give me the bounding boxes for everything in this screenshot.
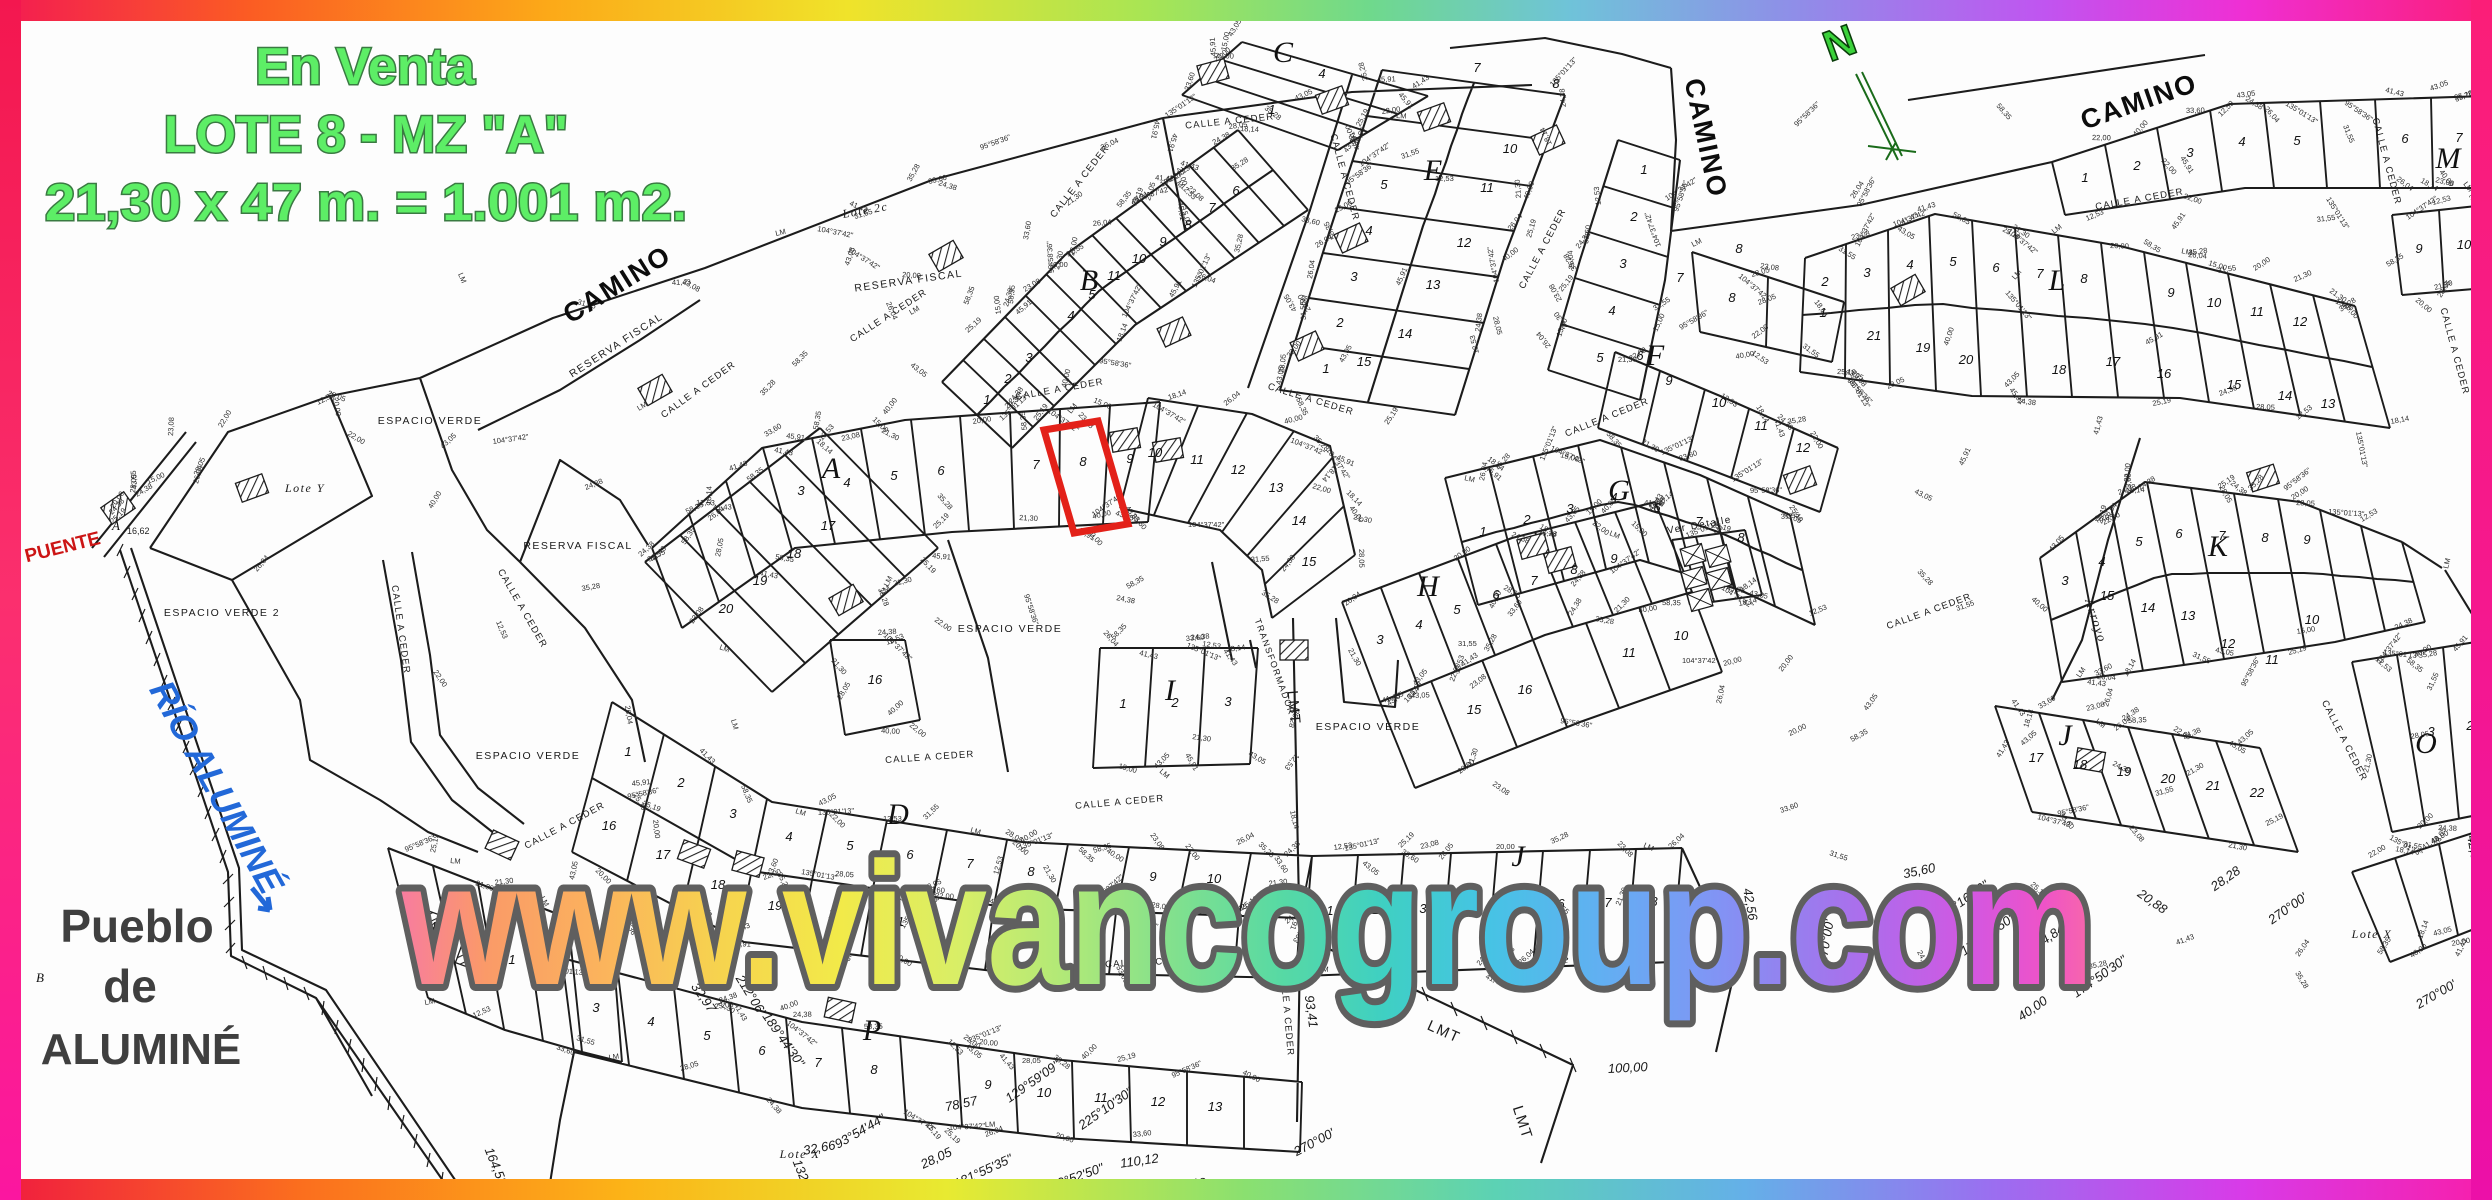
svg-text:17: 17	[821, 518, 836, 533]
svg-text:RESERVA FISCAL: RESERVA FISCAL	[523, 540, 632, 552]
svg-text:5: 5	[703, 1028, 711, 1043]
svg-text:5: 5	[890, 468, 898, 483]
svg-text:2: 2	[1335, 315, 1344, 330]
svg-text:11: 11	[1622, 645, 1636, 660]
svg-text:5: 5	[1380, 177, 1388, 192]
svg-text:3: 3	[1224, 694, 1232, 709]
svg-text:7: 7	[1676, 270, 1684, 285]
svg-text:1: 1	[2081, 170, 2088, 185]
svg-text:21,30 x 47 m. = 1.001 m2.: 21,30 x 47 m. = 1.001 m2.	[45, 174, 687, 232]
svg-text:1: 1	[1322, 361, 1329, 376]
svg-text:19: 19	[2117, 764, 2131, 779]
svg-text:8: 8	[870, 1062, 878, 1077]
svg-text:33,60: 33,60	[2186, 106, 2205, 115]
svg-text:20: 20	[1958, 352, 1974, 367]
svg-text:18: 18	[2073, 757, 2088, 772]
svg-text:3: 3	[1566, 501, 1574, 516]
svg-text:45,91: 45,91	[1377, 74, 1396, 84]
svg-text:O: O	[2415, 727, 2437, 760]
svg-text:12: 12	[1151, 1094, 1166, 1109]
svg-text:10: 10	[1132, 251, 1147, 266]
svg-text:18: 18	[787, 546, 802, 561]
svg-text:28,05: 28,05	[1357, 549, 1366, 568]
svg-text:LOTE 8 - MZ "A": LOTE 8 - MZ "A"	[164, 106, 569, 164]
svg-text:1: 1	[1640, 162, 1647, 177]
svg-text:28,05: 28,05	[2296, 498, 2315, 508]
svg-text:12: 12	[1796, 440, 1811, 455]
svg-text:22,00: 22,00	[2092, 133, 2111, 142]
svg-text:10: 10	[1674, 628, 1689, 643]
svg-text:6: 6	[1492, 587, 1500, 602]
svg-text:10: 10	[1712, 395, 1727, 410]
svg-text:7: 7	[1032, 457, 1040, 472]
svg-text:1: 1	[624, 744, 631, 759]
svg-text:1: 1	[1119, 696, 1126, 711]
svg-text:5: 5	[1596, 350, 1604, 365]
svg-text:31,55: 31,55	[1251, 554, 1270, 564]
svg-text:3: 3	[1619, 256, 1627, 271]
svg-text:5: 5	[1453, 602, 1461, 617]
svg-text:15: 15	[2227, 377, 2242, 392]
svg-text:10: 10	[1503, 141, 1518, 156]
svg-text:4: 4	[1608, 303, 1615, 318]
svg-text:16: 16	[1518, 682, 1533, 697]
svg-text:31,55: 31,55	[1458, 639, 1477, 648]
svg-text:2: 2	[676, 775, 685, 790]
svg-text:de: de	[103, 960, 157, 1012]
svg-text:19: 19	[753, 573, 767, 588]
svg-text:2: 2	[1522, 512, 1531, 527]
svg-text:www.vivancogroup.com: www.vivancogroup.com	[401, 827, 2094, 1022]
svg-text:6: 6	[1636, 348, 1644, 363]
svg-text:4: 4	[2238, 134, 2245, 149]
svg-text:5: 5	[2135, 534, 2143, 549]
svg-text:6: 6	[2175, 526, 2183, 541]
svg-text:3: 3	[2061, 573, 2069, 588]
svg-text:15: 15	[1357, 354, 1372, 369]
svg-text:1: 1	[983, 392, 990, 407]
svg-text:3: 3	[1350, 269, 1358, 284]
svg-text:ESPACIO VERDE: ESPACIO VERDE	[378, 415, 483, 427]
svg-text:11: 11	[1107, 268, 1121, 283]
svg-text:2: 2	[1003, 371, 1012, 386]
svg-text:9: 9	[2415, 241, 2422, 256]
svg-text:104°37'42": 104°37'42"	[1188, 520, 1225, 529]
svg-text:26,04: 26,04	[2188, 250, 2207, 261]
svg-text:B: B	[36, 970, 44, 985]
svg-text:12: 12	[1231, 462, 1246, 477]
svg-text:11: 11	[2250, 304, 2264, 319]
svg-text:LM: LM	[608, 1052, 620, 1062]
svg-text:8: 8	[2080, 271, 2088, 286]
svg-text:20: 20	[718, 601, 734, 616]
svg-text:25,19: 25,19	[1837, 367, 1856, 377]
svg-text:4: 4	[1067, 308, 1074, 323]
svg-text:7: 7	[1473, 60, 1481, 75]
svg-text:ESPACIO VERDE: ESPACIO VERDE	[958, 623, 1063, 635]
svg-text:1: 1	[1479, 524, 1486, 539]
svg-text:10: 10	[2305, 612, 2320, 627]
svg-text:15: 15	[1467, 702, 1482, 717]
svg-text:8: 8	[1184, 217, 1192, 232]
svg-text:E: E	[1423, 154, 1442, 187]
svg-text:21: 21	[2205, 778, 2220, 793]
svg-text:28,05: 28,05	[1022, 1056, 1041, 1065]
svg-text:23,08: 23,08	[166, 417, 176, 436]
svg-text:4: 4	[1906, 257, 1913, 272]
svg-text:22: 22	[2249, 785, 2265, 800]
svg-text:14: 14	[2141, 600, 2155, 615]
svg-text:7: 7	[814, 1055, 822, 1070]
svg-text:3: 3	[2186, 145, 2194, 160]
svg-text:K: K	[2207, 530, 2230, 563]
svg-text:20,00: 20,00	[2110, 241, 2129, 251]
svg-text:18: 18	[2052, 362, 2067, 377]
svg-text:Pueblo: Pueblo	[60, 900, 213, 952]
svg-text:6: 6	[2401, 131, 2409, 146]
svg-text:13: 13	[1208, 1099, 1223, 1114]
svg-text:12: 12	[2293, 314, 2308, 329]
svg-text:26,04: 26,04	[1092, 217, 1111, 228]
svg-text:16: 16	[868, 672, 883, 687]
svg-text:3: 3	[1025, 350, 1033, 365]
svg-text:18,14: 18,14	[2126, 485, 2145, 495]
svg-text:40,00: 40,00	[881, 726, 900, 736]
svg-text:7: 7	[2036, 266, 2044, 281]
svg-text:21: 21	[1866, 328, 1881, 343]
svg-text:15: 15	[2100, 588, 2115, 603]
svg-text:22,00: 22,00	[2122, 463, 2132, 482]
svg-text:ALUMINÉ: ALUMINÉ	[41, 1024, 241, 1074]
svg-text:6: 6	[937, 463, 945, 478]
svg-text:11: 11	[2265, 652, 2279, 667]
svg-text:13: 13	[2181, 608, 2196, 623]
svg-text:58,35: 58,35	[1662, 598, 1681, 607]
svg-text:24,38: 24,38	[1557, 88, 1568, 107]
svg-text:4: 4	[843, 475, 850, 490]
svg-text:2: 2	[2132, 158, 2141, 173]
svg-text:24,38: 24,38	[878, 627, 897, 637]
svg-text:5: 5	[1949, 254, 1957, 269]
svg-text:11: 11	[1480, 180, 1494, 195]
svg-text:14: 14	[1398, 326, 1412, 341]
svg-text:C: C	[1273, 36, 1294, 69]
svg-text:3: 3	[797, 483, 805, 498]
svg-text:F: F	[1645, 339, 1665, 372]
svg-text:14: 14	[2278, 388, 2292, 403]
svg-text:Lote X: Lote X	[2351, 927, 2393, 941]
svg-text:20: 20	[2160, 771, 2176, 786]
svg-text:9: 9	[984, 1077, 991, 1092]
svg-text:5: 5	[2293, 133, 2301, 148]
svg-text:15: 15	[1302, 554, 1317, 569]
svg-text:9: 9	[1159, 234, 1166, 249]
svg-text:45,91: 45,91	[932, 551, 951, 562]
svg-text:43,05: 43,05	[129, 470, 139, 489]
svg-text:21,30: 21,30	[1618, 355, 1637, 364]
svg-text:8: 8	[2261, 530, 2269, 545]
svg-text:J: J	[2058, 719, 2073, 752]
svg-text:A: A	[111, 518, 120, 533]
svg-text:12: 12	[1457, 235, 1472, 250]
svg-text:8: 8	[1552, 76, 1560, 91]
svg-text:L: L	[2048, 264, 2066, 297]
svg-text:104°37'42": 104°37'42"	[1682, 656, 1719, 665]
svg-text:104°37'42": 104°37'42"	[949, 1121, 986, 1132]
svg-text:100,00: 100,00	[1608, 1059, 1649, 1076]
svg-text:28,05: 28,05	[2256, 402, 2275, 412]
svg-text:9: 9	[1126, 451, 1133, 466]
svg-text:6: 6	[1232, 183, 1240, 198]
svg-text:17: 17	[2106, 354, 2121, 369]
svg-text:ESPACIO VERDE 2: ESPACIO VERDE 2	[164, 607, 280, 619]
svg-text:4: 4	[2098, 554, 2105, 569]
svg-text:21,30: 21,30	[1019, 513, 1038, 523]
svg-text:ESPACIO VERDE: ESPACIO VERDE	[476, 750, 581, 762]
svg-text:2: 2	[1629, 209, 1638, 224]
svg-text:4: 4	[1365, 223, 1372, 238]
svg-text:11: 11	[1754, 418, 1768, 433]
svg-text:2: 2	[1820, 274, 1829, 289]
svg-text:17: 17	[2029, 750, 2044, 765]
svg-text:13: 13	[1269, 480, 1284, 495]
svg-text:B: B	[1080, 264, 1098, 297]
svg-text:95°58'36": 95°58'36"	[1750, 485, 1783, 495]
svg-text:Lote Y: Lote Y	[284, 481, 325, 495]
svg-text:9: 9	[2167, 285, 2174, 300]
svg-text:10: 10	[2207, 295, 2222, 310]
svg-text:7: 7	[1530, 573, 1538, 588]
svg-text:9: 9	[2303, 532, 2310, 547]
svg-text:13: 13	[1426, 277, 1441, 292]
svg-text:En Venta: En Venta	[255, 38, 476, 96]
svg-text:M: M	[2435, 142, 2463, 175]
svg-text:10: 10	[2457, 237, 2472, 252]
svg-text:3: 3	[1863, 265, 1871, 280]
svg-text:8: 8	[1570, 562, 1578, 577]
svg-text:9: 9	[1610, 551, 1617, 566]
svg-text:A: A	[820, 452, 841, 485]
svg-text:4: 4	[1318, 66, 1325, 81]
svg-text:9: 9	[1665, 373, 1672, 388]
svg-text:6: 6	[758, 1043, 766, 1058]
svg-text:4: 4	[1415, 617, 1422, 632]
svg-text:10: 10	[1148, 445, 1163, 460]
svg-text:3: 3	[1376, 632, 1384, 647]
svg-text:41,43: 41,43	[672, 277, 691, 287]
svg-text:6: 6	[1653, 500, 1661, 515]
svg-text:11: 11	[1190, 452, 1204, 467]
svg-text:G: G	[1608, 474, 1630, 507]
svg-text:14: 14	[1292, 513, 1306, 528]
svg-text:6: 6	[1992, 260, 2000, 275]
svg-text:H: H	[1416, 570, 1441, 603]
svg-text:ESPACIO VERDE: ESPACIO VERDE	[1316, 721, 1421, 733]
svg-text:19: 19	[1916, 340, 1930, 355]
svg-text:8: 8	[1079, 454, 1087, 469]
svg-text:10: 10	[1037, 1085, 1052, 1100]
svg-text:16,62: 16,62	[127, 526, 150, 536]
svg-text:1: 1	[1819, 305, 1826, 320]
svg-text:3: 3	[729, 806, 737, 821]
svg-text:16: 16	[2157, 366, 2172, 381]
svg-text:41,43: 41,43	[1155, 173, 1174, 183]
svg-text:7: 7	[1208, 200, 1216, 215]
svg-text:13: 13	[2321, 396, 2336, 411]
svg-text:8: 8	[1737, 530, 1745, 545]
svg-text:8: 8	[1735, 241, 1743, 256]
svg-text:8: 8	[1728, 290, 1736, 305]
svg-text:12: 12	[2221, 636, 2236, 651]
